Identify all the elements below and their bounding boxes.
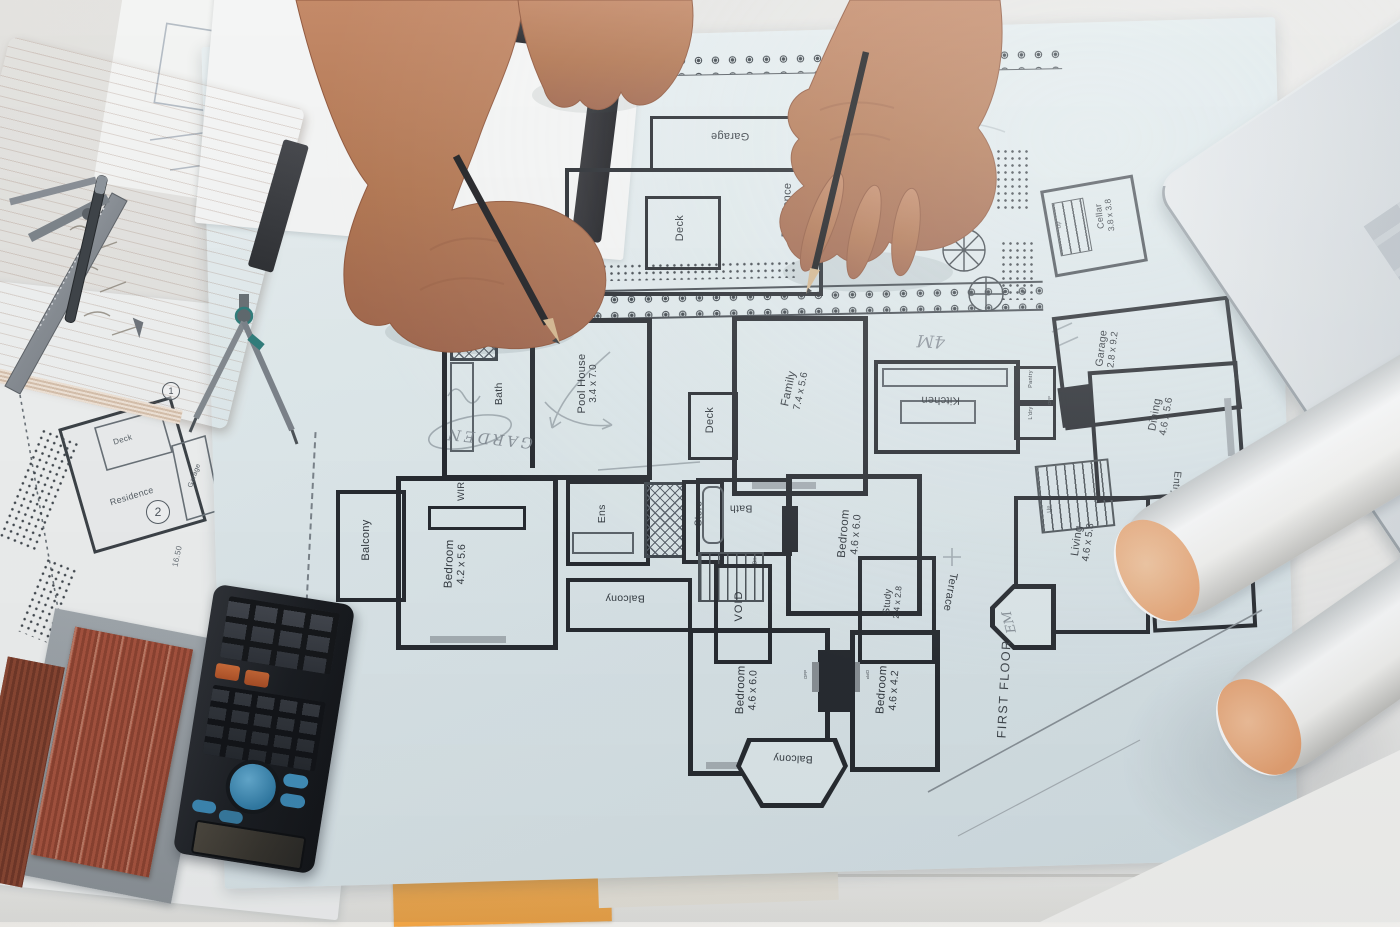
photo-architects-desk: { "plan": { "title": "FIRST FLOOR", "roo… — [0, 0, 1400, 922]
hands-overlay — [0, 0, 1400, 922]
